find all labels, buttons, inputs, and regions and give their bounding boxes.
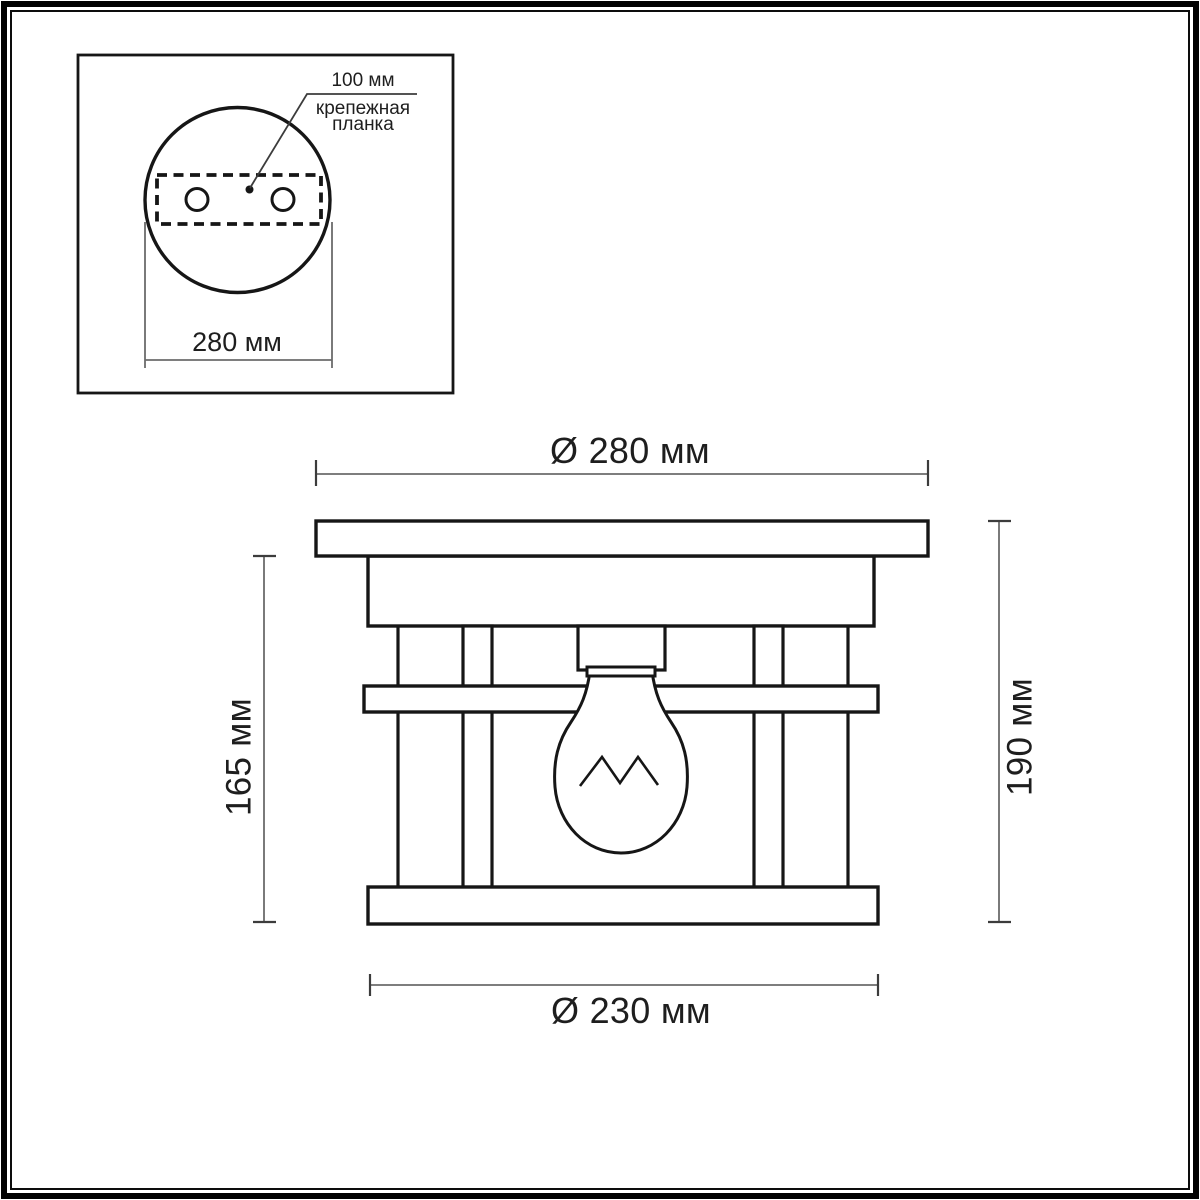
diagram-canvas: 100 мм крепежная планка 280 мм Ø 280 мм … (0, 0, 1200, 1200)
side-view-drawing (316, 521, 928, 924)
mounting-hole-left (186, 189, 208, 211)
body-height-label: 165 мм (222, 698, 259, 816)
bottom-band (368, 887, 878, 924)
body-tier (368, 556, 874, 626)
cage-post-right (754, 626, 783, 889)
inset-width-dimension-label: 280 мм (192, 328, 282, 356)
bottom-diameter-label: Ø 230 мм (551, 992, 711, 1030)
mounting-hole-right (272, 189, 294, 211)
cage-post-left (463, 626, 492, 889)
inset-callout-caption: крепежная планка (316, 101, 410, 133)
socket-housing (578, 626, 665, 670)
fixture-outline-circle (145, 108, 330, 293)
plate-center-dot (246, 186, 254, 194)
inset-callout-value: 100 мм (331, 73, 394, 89)
top-diameter-label: Ø 280 мм (550, 432, 710, 470)
total-height-label: 190 мм (1003, 678, 1040, 796)
canopy-plate (316, 521, 928, 556)
socket-lip (587, 667, 655, 676)
